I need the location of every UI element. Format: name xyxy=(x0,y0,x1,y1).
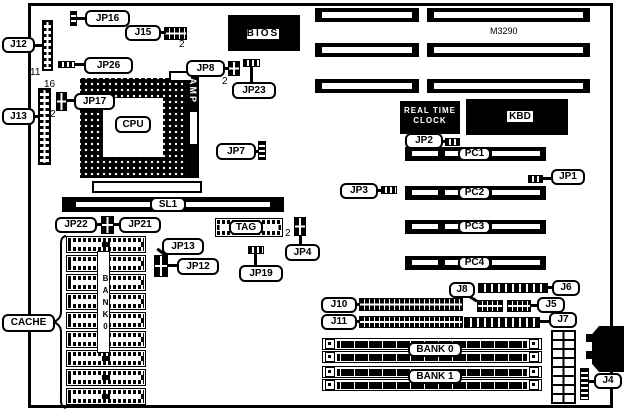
keyboard-din-connector xyxy=(592,326,624,372)
jumper-jp1 xyxy=(528,175,543,183)
simm-bank0-label: BANK 0 xyxy=(408,342,462,357)
label-text: J10 xyxy=(331,300,348,310)
slot-label-pc1: PC1 xyxy=(458,147,491,161)
rtc-chip-label-line2: CLOCK xyxy=(400,116,460,126)
slot-groove xyxy=(412,151,438,156)
jumper-label-jp8: JP8 xyxy=(186,60,225,77)
label-text: AMP xyxy=(188,78,198,104)
connector-j12 xyxy=(42,20,53,71)
slot-groove xyxy=(445,151,459,156)
label-text: J6 xyxy=(560,283,571,293)
label-text: J11 xyxy=(331,317,347,327)
label-text: TAG xyxy=(236,223,256,233)
header-j11 xyxy=(359,316,463,328)
jumper-jp26 xyxy=(58,61,75,68)
label-text: JP21 xyxy=(128,220,151,230)
label-text: JP22 xyxy=(64,220,87,230)
pin-number: 16 xyxy=(44,80,55,90)
pin-number: 2 xyxy=(50,110,56,120)
label-text: JP26 xyxy=(97,61,120,71)
jumper-jp8 xyxy=(228,61,240,76)
slot-groove xyxy=(412,224,438,229)
header-label-j5: J5 xyxy=(537,297,565,313)
simm-bank1-label: BANK 1 xyxy=(408,369,462,384)
header-j6 xyxy=(478,283,548,293)
label-text: KBD xyxy=(509,112,531,122)
pin-number-text: 11 xyxy=(30,67,40,78)
cache-dip-socket xyxy=(66,388,146,405)
jumper-label-jp22: JP22 xyxy=(55,217,97,233)
header-j10 xyxy=(359,298,463,311)
rtc-chip-label-line1: REAL TIME xyxy=(400,101,460,116)
isa-slot-groove xyxy=(322,83,412,89)
label-text: JP2 xyxy=(415,136,433,146)
label-text: J8 xyxy=(456,285,467,295)
cache-label: CACHE xyxy=(2,314,55,332)
jumper-label-jp23: JP23 xyxy=(232,82,276,99)
header-j4 xyxy=(580,368,589,400)
header-label-j7: J7 xyxy=(549,312,577,328)
label-text: CLOCK xyxy=(413,116,446,125)
pin-number-text: 16 xyxy=(44,79,55,90)
header-j7 xyxy=(464,317,540,328)
label-text: PC4 xyxy=(465,258,484,268)
slot-groove xyxy=(445,190,459,195)
label-text: BIOS xyxy=(247,29,279,39)
amp-socket-label: AMP xyxy=(188,78,198,104)
jumper-jp2 xyxy=(445,138,460,146)
board-model-label: M3290 xyxy=(490,27,518,36)
callout-tail xyxy=(250,66,253,82)
pin-number: 2 xyxy=(222,77,228,87)
connector-label-j12: J12 xyxy=(2,37,35,53)
jumper-jp16 xyxy=(70,11,77,26)
label-text: J7 xyxy=(557,315,568,325)
header-label-j15: J15 xyxy=(125,25,161,41)
jumper-label-jp1: JP1 xyxy=(551,169,585,185)
jumper-label-jp4: JP4 xyxy=(285,244,320,261)
label-text: JP17 xyxy=(83,97,106,107)
isa-slot-groove xyxy=(434,83,583,89)
slot-groove xyxy=(412,260,438,265)
label-text: J5 xyxy=(545,300,556,310)
jumper-label-jp13: JP13 xyxy=(162,238,204,255)
label-text: J12 xyxy=(10,40,27,50)
label-text: M3290 xyxy=(490,26,518,36)
header-j5 xyxy=(507,300,531,312)
jumper-jp4 xyxy=(294,217,306,236)
callout-tail xyxy=(77,17,85,20)
jumper-label-jp19: JP19 xyxy=(239,265,283,282)
label-text: J4 xyxy=(602,376,613,386)
header-j8 xyxy=(477,300,503,312)
pin-number-text: 2 xyxy=(50,109,56,120)
keyboard-din-tab xyxy=(586,334,593,342)
header-label-j4: J4 xyxy=(594,373,622,389)
header-label-j8: J8 xyxy=(449,282,475,298)
label-text: JP12 xyxy=(186,262,209,272)
motherboard-layout-diagram: J12 11 J13 16 2 JP17 JP16 J15 2 BIOS JP2… xyxy=(0,0,624,416)
label-text: J15 xyxy=(135,28,152,38)
connector-label-j13: J13 xyxy=(2,108,35,125)
connector-j13 xyxy=(38,88,51,165)
pin-number-text: 2 xyxy=(285,228,291,239)
label-text: SL1 xyxy=(159,200,177,210)
pin-number-text: 2 xyxy=(179,39,185,50)
isa-slot-groove xyxy=(322,47,412,53)
label-text: REAL TIME xyxy=(404,106,456,115)
slot-label-pc3: PC3 xyxy=(458,220,491,234)
cache-brace xyxy=(53,234,67,410)
jumper-label-jp26: JP26 xyxy=(84,57,133,74)
header-label-j11: J11 xyxy=(321,314,357,330)
header-label-j10: J10 xyxy=(321,297,357,313)
label-text: CPU xyxy=(122,120,143,130)
label-text: J13 xyxy=(10,112,27,122)
label-text: JP4 xyxy=(294,248,312,258)
label-text: JP13 xyxy=(171,242,194,252)
slot-groove xyxy=(492,151,540,156)
label-text: CACHE xyxy=(11,318,47,328)
jumper-label-jp2: JP2 xyxy=(405,133,443,149)
label-text: JP1 xyxy=(559,172,577,182)
cpu-socket-lever xyxy=(92,181,202,193)
jumper-label-jp7: JP7 xyxy=(216,143,256,160)
slot-groove xyxy=(492,260,540,265)
callout-tail xyxy=(530,304,537,307)
slot-groove xyxy=(445,224,459,229)
label-text: JP19 xyxy=(249,269,272,279)
power-connector xyxy=(551,330,576,404)
callout-tail xyxy=(542,177,551,180)
pin-number-text: 2 xyxy=(222,76,228,87)
label-text: JP3 xyxy=(350,186,368,196)
jumper-label-jp12: JP12 xyxy=(177,258,219,275)
label-text: JP23 xyxy=(242,86,265,96)
label-text: BANK 1 xyxy=(416,372,453,382)
bios-chip-label: BIOS xyxy=(245,27,281,41)
label-text: JP16 xyxy=(96,14,119,24)
jumper-label-jp3: JP3 xyxy=(340,183,378,199)
jumper-jp13-jp12 xyxy=(154,255,168,277)
label-text: PC2 xyxy=(465,188,484,198)
cpu-label: CPU xyxy=(115,116,151,133)
jumper-label-jp16: JP16 xyxy=(85,10,130,27)
slot-label-pc4: PC4 xyxy=(458,256,491,270)
tag-label: TAG xyxy=(229,220,263,235)
label-text: PC3 xyxy=(465,222,484,232)
callout-tail xyxy=(74,63,84,66)
cache-dip-socket xyxy=(66,369,146,386)
kbd-chip-label: KBD xyxy=(505,109,535,124)
isa-slot-groove xyxy=(434,12,583,18)
jumper-jp7 xyxy=(258,141,266,160)
pin-number: 2 xyxy=(285,229,291,239)
isa-slot-groove xyxy=(322,12,412,18)
slot-label-sl1: SL1 xyxy=(150,197,186,212)
jumper-jp3 xyxy=(381,186,397,194)
slot-groove xyxy=(445,260,459,265)
label-text: BANK0 xyxy=(101,274,110,334)
label-text: JP7 xyxy=(227,147,245,157)
amp-socket-slot xyxy=(190,112,197,144)
rtc-chip: REAL TIME CLOCK xyxy=(400,101,460,134)
label-text: PC1 xyxy=(465,149,484,159)
pin-number: 11 xyxy=(30,68,40,78)
pin-number: 2 xyxy=(179,40,185,50)
keyboard-din-tab xyxy=(586,351,593,359)
label-text: JP8 xyxy=(197,64,215,74)
label-text: BANK 0 xyxy=(416,345,453,355)
slot-groove xyxy=(492,190,540,195)
slot-groove xyxy=(412,190,438,195)
jumper-label-jp17: JP17 xyxy=(74,93,115,110)
slot-label-pc2: PC2 xyxy=(458,186,491,200)
cache-bank-label: BANK0 xyxy=(97,251,110,353)
isa-slot-groove xyxy=(434,47,583,53)
slot-groove xyxy=(492,224,540,229)
jumper-label-jp21: JP21 xyxy=(119,217,161,233)
header-label-j6: J6 xyxy=(552,280,580,296)
callout-tail xyxy=(167,264,177,267)
